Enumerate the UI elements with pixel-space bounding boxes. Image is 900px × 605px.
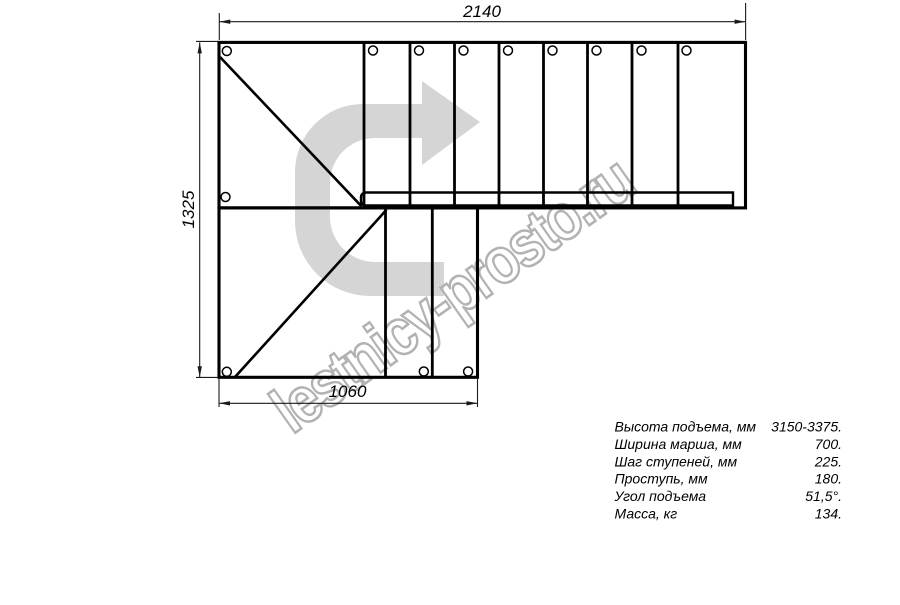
svg-text:134.: 134.: [815, 505, 842, 521]
svg-text:1060: 1060: [329, 382, 367, 401]
svg-text:Шаг ступеней, мм: Шаг ступеней, мм: [615, 453, 738, 469]
svg-text:3150-3375.: 3150-3375.: [771, 419, 842, 435]
svg-text:51,5°.: 51,5°.: [805, 488, 842, 504]
svg-text:Ширина марша, мм: Ширина марша, мм: [615, 436, 743, 452]
svg-text:Проступь, мм: Проступь, мм: [615, 471, 709, 487]
svg-text:700.: 700.: [815, 436, 842, 452]
svg-text:225.: 225.: [814, 453, 842, 469]
svg-text:2140: 2140: [462, 2, 501, 21]
svg-text:Угол подъема: Угол подъема: [614, 488, 707, 504]
svg-text:180.: 180.: [815, 471, 842, 487]
svg-text:Масса, кг: Масса, кг: [615, 505, 678, 521]
svg-text:Высота подъема, мм: Высота подъема, мм: [615, 419, 757, 435]
svg-text:1325: 1325: [179, 190, 198, 228]
